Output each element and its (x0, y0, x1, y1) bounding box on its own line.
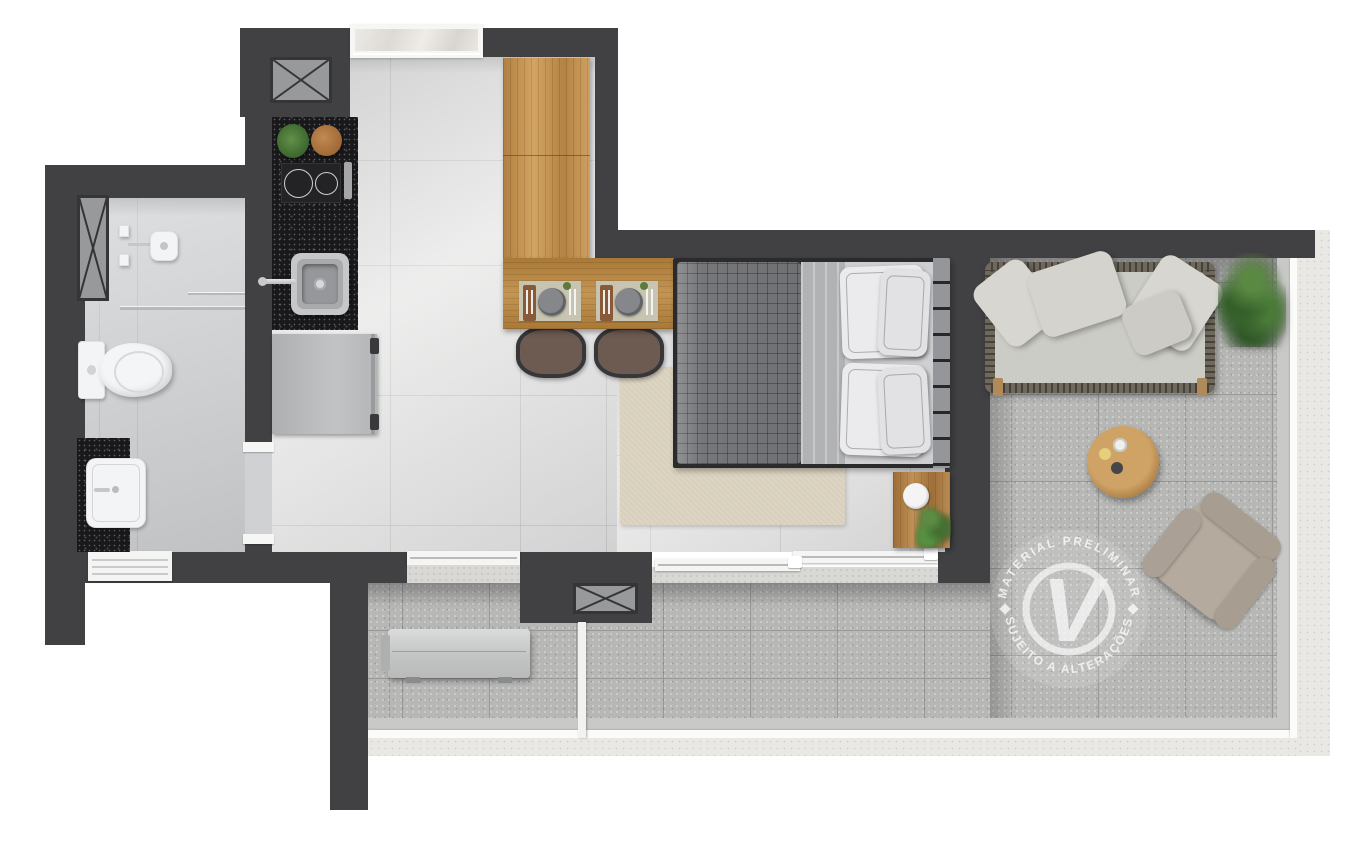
wall-terrace-divider-left (330, 560, 368, 810)
duct-shaft-terrace-icon (573, 583, 638, 614)
door-glass-line (658, 564, 797, 566)
utensil-rail (344, 162, 352, 199)
sliding-door-left-sill (407, 565, 520, 583)
shower-control (119, 254, 129, 266)
bathroom-window (88, 551, 172, 581)
coffee-table (1087, 426, 1159, 498)
sliding-door-panel-left (655, 559, 800, 571)
dining-chair (594, 326, 664, 378)
basin-drain (112, 486, 119, 493)
sofa-leg (1197, 378, 1207, 396)
refrigerator (272, 334, 377, 434)
ac-condenser (388, 629, 530, 678)
bathroom-door-jamb-top (243, 442, 274, 452)
ac-foot (498, 677, 512, 683)
basin-faucet (94, 488, 110, 492)
toilet-bowl (100, 343, 172, 397)
terrace-plant (1218, 253, 1286, 347)
cutlery-left (526, 290, 533, 314)
headboard-cushions (933, 258, 950, 468)
table-cup (1113, 438, 1127, 452)
kitchen-faucet (262, 279, 296, 284)
basin-inner-rim (92, 464, 140, 522)
bathroom-door-jamb-bottom (243, 534, 274, 544)
kitchen-sink (291, 253, 349, 315)
cutlery-right (569, 289, 578, 315)
cutting-board (311, 125, 342, 156)
fridge-handle-bottom (370, 414, 379, 430)
toilet-flush-button (87, 365, 96, 375)
sink-drain (314, 278, 326, 290)
cooktop (281, 163, 341, 203)
cutlery-left (603, 290, 610, 314)
shower-head (150, 231, 178, 261)
table-bowl (1111, 462, 1123, 474)
fridge-handle-top (370, 338, 379, 354)
terrace-glass-partition (578, 622, 586, 738)
shower-glass-partition (188, 293, 245, 295)
ac-foot (406, 677, 420, 683)
vanity-basin (86, 458, 146, 528)
burner-small (315, 172, 338, 195)
garnish (563, 282, 571, 290)
sofa-leg (993, 378, 1003, 396)
railing-bottom (368, 730, 1297, 738)
nightstand-plant (915, 502, 951, 548)
herb-plant (277, 124, 309, 158)
garnish (640, 282, 648, 290)
bed-sheet (801, 262, 845, 464)
kitchen-faucet-base (258, 277, 267, 286)
wall-step-topright (595, 28, 618, 240)
louver-line (92, 559, 168, 561)
slab-edge-right (1297, 230, 1330, 756)
burner-large (284, 169, 313, 198)
floor-plan-canvas: MATERIAL PRELIMINAR SUJEITO A ALTERAÇÕES… (0, 0, 1362, 862)
kitchen-window-rail (353, 53, 480, 55)
ac-side-panel (381, 635, 390, 671)
railing-right (1290, 258, 1297, 738)
sofa-weave-bottom (991, 383, 1209, 393)
duct-shaft-bathroom-icon (77, 195, 109, 301)
shower-head-nozzle (160, 242, 168, 250)
watermark-monogram: V (1042, 561, 1109, 661)
ac-seam (392, 651, 526, 652)
pillow (877, 367, 931, 455)
bed-quilt (677, 262, 801, 464)
shower-glass-door (120, 307, 245, 310)
terrace-strip-shadow (368, 583, 990, 607)
shower-control (119, 225, 129, 237)
louver-line (92, 566, 168, 568)
kitchen-window (350, 24, 483, 58)
wardrobe (503, 58, 590, 258)
slab-edge-bottom (368, 738, 1330, 756)
door-handle (924, 548, 938, 560)
dining-chair (516, 326, 586, 378)
dining-table (503, 258, 673, 329)
sliding-door-left (407, 551, 520, 565)
door-glass-line (410, 557, 517, 559)
pillow (877, 269, 931, 357)
watermark-seal: MATERIAL PRELIMINAR SUJEITO A ALTERAÇÕES… (988, 528, 1150, 690)
double-bed (673, 258, 950, 468)
door-glass-line (796, 556, 935, 558)
cutlery-right (646, 289, 655, 315)
duct-shaft-kitchen-icon (270, 57, 332, 103)
sliding-door-panel-right (793, 551, 938, 563)
louver-line (92, 573, 168, 575)
dinner-plate (538, 288, 566, 316)
table-dish (1099, 448, 1111, 460)
wall-top-terrace (595, 230, 1315, 258)
wardrobe-seam (503, 155, 590, 156)
bathroom-door-opening (245, 451, 272, 535)
door-handle (788, 556, 802, 568)
dinner-plate (615, 288, 643, 316)
parapet-inner-bottom (368, 718, 1277, 730)
kitchen-window-sill (355, 29, 478, 51)
toilet-seat-ring (114, 351, 164, 393)
